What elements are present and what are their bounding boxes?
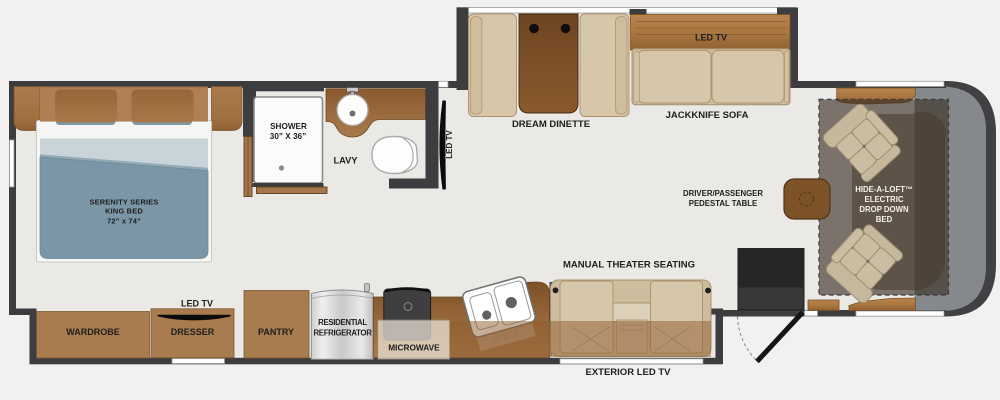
svg-text:72” x 74”: 72” x 74” bbox=[107, 217, 141, 226]
svg-text:JACKKNIFE SOFA: JACKKNIFE SOFA bbox=[666, 110, 749, 121]
svg-text:30” X 36”: 30” X 36” bbox=[270, 132, 306, 141]
svg-text:RESIDENTIAL: RESIDENTIAL bbox=[318, 318, 367, 327]
svg-text:PEDESTAL TABLE: PEDESTAL TABLE bbox=[689, 199, 757, 208]
svg-text:LED TV: LED TV bbox=[695, 33, 727, 43]
svg-text:SERENITY SERIES: SERENITY SERIES bbox=[90, 198, 159, 207]
svg-text:DRESSER: DRESSER bbox=[171, 327, 215, 337]
svg-text:WARDROBE: WARDROBE bbox=[66, 327, 120, 337]
svg-text:SHOWER: SHOWER bbox=[270, 122, 307, 131]
svg-text:LAVY: LAVY bbox=[333, 156, 358, 166]
svg-text:KING BED: KING BED bbox=[105, 207, 143, 216]
svg-text:REFRIGERATOR: REFRIGERATOR bbox=[313, 329, 372, 338]
svg-text:LED TV: LED TV bbox=[445, 130, 454, 159]
svg-text:MICROWAVE: MICROWAVE bbox=[388, 343, 440, 353]
svg-text:MANUAL THEATER SEATING: MANUAL THEATER SEATING bbox=[563, 260, 695, 271]
svg-text:BED: BED bbox=[876, 215, 893, 224]
svg-text:LED TV: LED TV bbox=[181, 299, 213, 309]
svg-text:DROP DOWN: DROP DOWN bbox=[859, 205, 909, 214]
svg-text:EXTERIOR LED TV: EXTERIOR LED TV bbox=[586, 367, 672, 378]
svg-text:DRIVER/PASSENGER: DRIVER/PASSENGER bbox=[683, 189, 763, 198]
svg-text:PANTRY: PANTRY bbox=[258, 327, 294, 337]
svg-text:HIDE-A-LOFT™: HIDE-A-LOFT™ bbox=[855, 185, 913, 194]
svg-text:DREAM DINETTE: DREAM DINETTE bbox=[512, 119, 590, 130]
svg-text:ELECTRIC: ELECTRIC bbox=[865, 195, 904, 204]
